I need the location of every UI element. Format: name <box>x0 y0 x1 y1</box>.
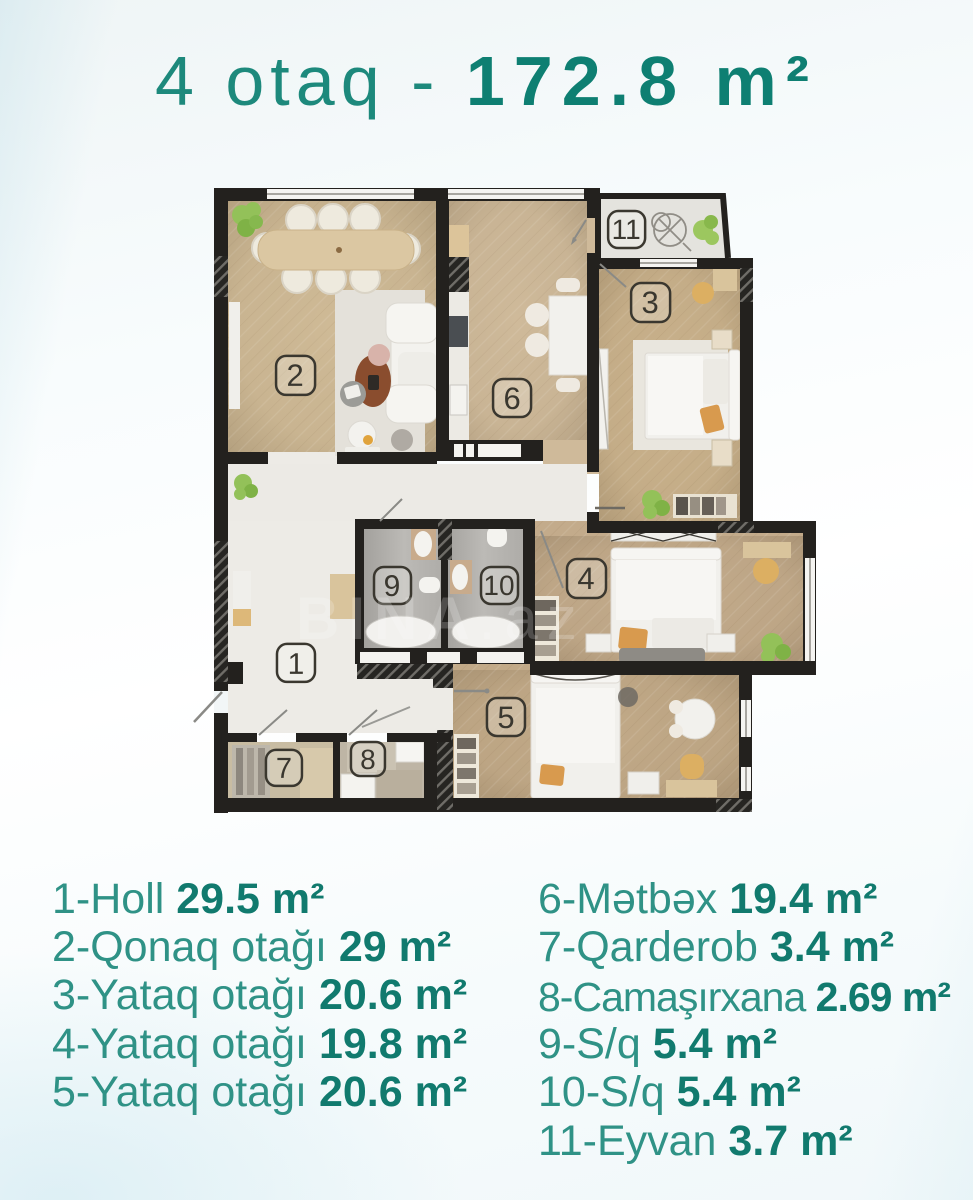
svg-text:3: 3 <box>641 285 658 320</box>
svg-text:8: 8 <box>360 744 376 775</box>
svg-text:11: 11 <box>612 214 641 245</box>
svg-text:5: 5 <box>497 700 514 735</box>
svg-text:2: 2 <box>286 358 303 393</box>
svg-text:6: 6 <box>503 381 520 416</box>
svg-text:7: 7 <box>276 753 292 785</box>
